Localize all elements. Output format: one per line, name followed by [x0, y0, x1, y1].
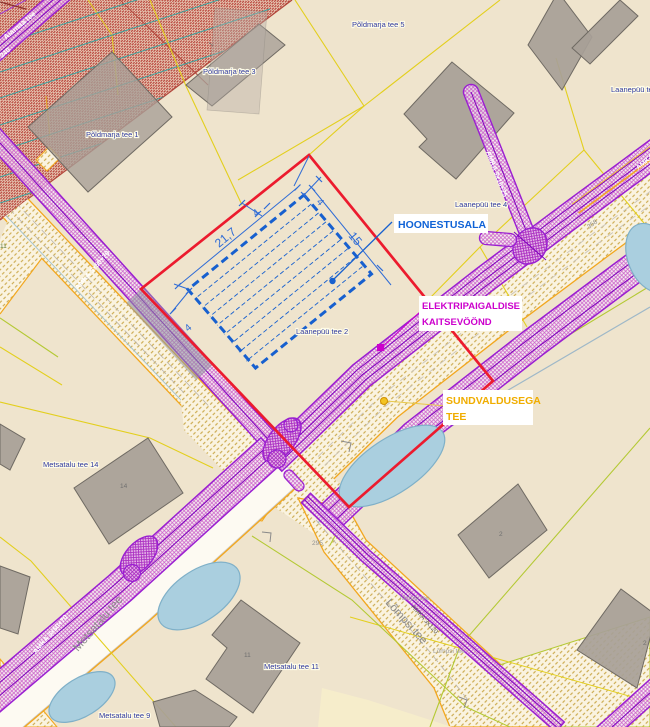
svg-text:HOONESTUSALA: HOONESTUSALA: [398, 219, 487, 231]
svg-text:SUNDVALDUSEGA: SUNDVALDUSEGA: [446, 395, 541, 407]
svg-text:Laanepüü tee 4: Laanepüü tee 4: [455, 200, 507, 209]
svg-text:Põldmarja tee 5: Põldmarja tee 5: [352, 20, 405, 29]
svg-text:TEE: TEE: [446, 411, 466, 423]
svg-text:14: 14: [120, 483, 128, 490]
svg-text:295: 295: [312, 540, 323, 547]
svg-text:Põldmarja tee 1: Põldmarja tee 1: [86, 130, 139, 139]
svg-text:2: 2: [643, 640, 647, 647]
svg-text:Metsatalu tee 14: Metsatalu tee 14: [43, 460, 98, 469]
svg-text:lõmpsi tee: lõmpsi tee: [400, 595, 430, 602]
svg-text:Metsatalu tee 9: Metsatalu tee 9: [99, 711, 150, 720]
svg-text:Põldmarja tee 3: Põldmarja tee 3: [203, 67, 256, 76]
svg-text:KAITSEVÖÖND: KAITSEVÖÖND: [422, 317, 492, 328]
svg-text:Lõmpsi tee: Lõmpsi tee: [433, 648, 465, 655]
svg-text:ELEKTRIPAIGALDISE: ELEKTRIPAIGALDISE: [422, 301, 520, 312]
svg-text:11: 11: [0, 243, 7, 250]
svg-text:2: 2: [499, 531, 503, 538]
svg-text:Metsatalu tee 11: Metsatalu tee 11: [264, 662, 319, 671]
svg-text:Laanepüü tee 2: Laanepüü tee 2: [296, 327, 348, 336]
svg-text:11: 11: [244, 652, 251, 659]
svg-text:Laanepüü tee: Laanepüü tee: [611, 85, 650, 94]
